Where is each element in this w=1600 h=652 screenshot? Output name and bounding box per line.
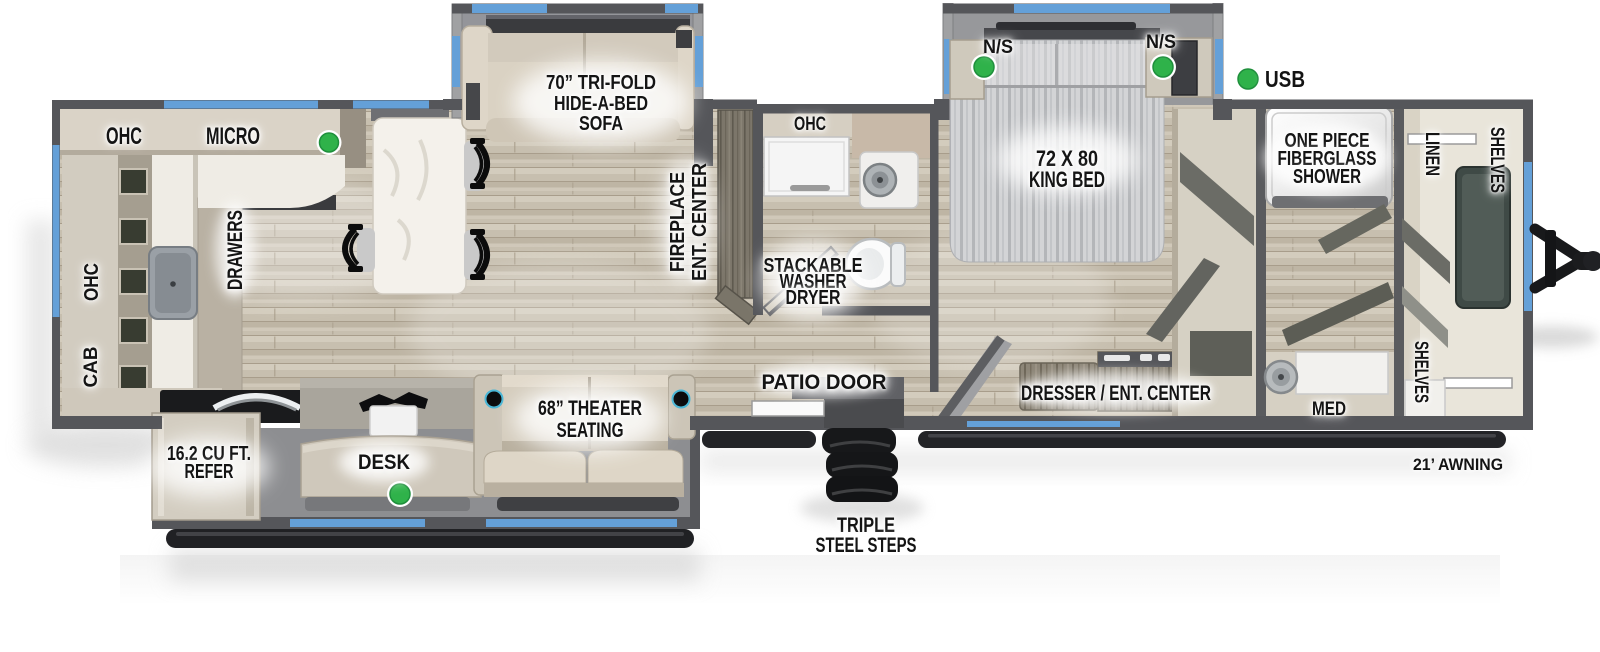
- svg-text:OHC: OHC: [794, 114, 826, 135]
- svg-text:OHC: OHC: [106, 123, 142, 150]
- svg-text:REFER: REFER: [185, 461, 234, 483]
- svg-text:MICRO: MICRO: [206, 123, 260, 150]
- svg-text:STEEL STEPS: STEEL STEPS: [816, 534, 917, 557]
- svg-text:LINEN: LINEN: [1421, 132, 1442, 176]
- svg-text:N/S: N/S: [1146, 32, 1176, 53]
- svg-text:SOFA: SOFA: [579, 113, 623, 135]
- svg-text:21’ AWNING: 21’ AWNING: [1413, 455, 1503, 474]
- svg-text:FIREPLACE: FIREPLACE: [667, 172, 689, 272]
- svg-text:ENT. CENTER: ENT. CENTER: [689, 163, 711, 281]
- svg-text:DESK: DESK: [358, 451, 410, 474]
- svg-text:PATIO DOOR: PATIO DOOR: [762, 371, 887, 394]
- svg-text:DRAWERS: DRAWERS: [224, 210, 247, 290]
- svg-text:SHOWER: SHOWER: [1293, 166, 1361, 188]
- svg-text:OHC: OHC: [81, 263, 103, 301]
- svg-text:SHELVES: SHELVES: [1486, 127, 1507, 193]
- svg-text:USB: USB: [1265, 66, 1305, 92]
- svg-text:N/S: N/S: [983, 37, 1013, 58]
- svg-text:SEATING: SEATING: [557, 419, 624, 442]
- svg-text:KING BED: KING BED: [1029, 167, 1105, 192]
- svg-text:HIDE-A-BED: HIDE-A-BED: [554, 93, 648, 115]
- svg-text:CAB: CAB: [81, 347, 102, 388]
- svg-text:70” TRI-FOLD: 70” TRI-FOLD: [546, 72, 656, 94]
- svg-text:DRYER: DRYER: [786, 287, 841, 309]
- svg-text:68” THEATER: 68” THEATER: [538, 397, 642, 420]
- svg-text:SHELVES: SHELVES: [1410, 341, 1431, 403]
- svg-text:DRESSER / ENT. CENTER: DRESSER / ENT. CENTER: [1021, 382, 1211, 405]
- svg-text:MED: MED: [1312, 399, 1346, 420]
